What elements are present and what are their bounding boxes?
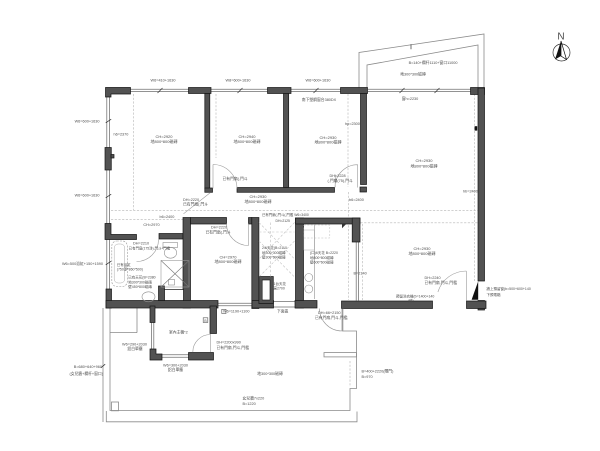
svg-text:下預電箱: 下預電箱 xyxy=(487,292,501,297)
svg-text:(750淨*860*500): (750淨*860*500) xyxy=(117,267,143,272)
svg-text:已有門扇(,門斗: 已有門扇(,門斗 xyxy=(183,201,208,206)
svg-text:地800*800磁磚: 地800*800磁磚 xyxy=(409,250,436,256)
svg-text:(女兒牆+欄杆+窗口): (女兒牆+欄杆+窗口) xyxy=(69,371,103,376)
svg-text:W6=600+1630: W6=600+1630 xyxy=(75,120,100,124)
svg-text:B=140+欄杆1110+窗口11000: B=140+欄杆1110+窗口11000 xyxy=(409,60,458,65)
svg-text:地800*800磁磚: 地800*800磁磚 xyxy=(215,258,242,264)
svg-text:(穩): (穩) xyxy=(408,298,414,303)
svg-text:已有門扇(,門斗: 已有門扇(,門斗 xyxy=(206,229,231,234)
svg-text:DH=2210: DH=2210 xyxy=(133,242,149,246)
svg-text:h6=2370: h6=2370 xyxy=(114,133,129,137)
svg-text:壁600*600磁磚: 壁600*600磁磚 xyxy=(310,260,334,265)
svg-text:W8=600+1630: W8=600+1630 xyxy=(226,79,251,83)
svg-text:W6=410+1630: W6=410+1630 xyxy=(151,79,176,83)
svg-text:B=1220: B=1220 xyxy=(243,402,256,406)
svg-text:地800*800磁磚: 地800*800磁磚 xyxy=(245,198,272,204)
svg-text:2/6天花(B=2110: 2/6天花(B=2110 xyxy=(262,245,287,250)
svg-text:地300*300磁磚: 地300*300磁磚 xyxy=(128,279,152,284)
svg-text:地800*800磁磚: 地800*800磁磚 xyxy=(411,163,438,169)
svg-text:DH=2200x990: DH=2200x990 xyxy=(217,340,241,344)
svg-text:下面區: 下面區 xyxy=(277,308,289,313)
svg-text:鋁白單塵: 鋁白單塵 xyxy=(168,367,183,372)
svg-text:預留洗衣機(b=1400+140: 預留洗衣機(b=1400+140 xyxy=(396,294,434,299)
svg-text:DH=2228: DH=2228 xyxy=(330,174,346,178)
svg-text:DH=66+2150: DH=66+2150 xyxy=(318,311,341,315)
svg-text:室內主機*2: 室內主機*2 xyxy=(169,329,188,334)
svg-text:1台天花: 1台天花 xyxy=(274,281,287,286)
svg-text:已有門扇(175淨),門斗+門檻: 已有門扇(175淨),門斗+門檻 xyxy=(129,246,171,251)
svg-text:B=970: B=970 xyxy=(362,375,373,379)
svg-text:高2700: 高2700 xyxy=(274,286,285,291)
svg-text:b6=2400: b6=2400 xyxy=(349,198,364,202)
svg-text:壁300*600磁磚: 壁300*600磁磚 xyxy=(262,255,286,260)
svg-text:已有門扇(,門斗: 已有門扇(,門斗 xyxy=(223,176,248,181)
svg-text:已有浴缸: 已有浴缸 xyxy=(117,262,131,267)
svg-text:b6=2400: b6=2400 xyxy=(160,215,175,219)
svg-text:W6=1190+1100: W6=1190+1100 xyxy=(223,309,249,313)
svg-text:地800*800磁磚: 地800*800磁磚 xyxy=(310,255,334,260)
svg-text:hp=2300: hp=2300 xyxy=(345,122,360,126)
svg-text:已有門扇(,門斗(,門檻 W6=3400: 已有門扇(,門斗(,門檻 W6=3400 xyxy=(262,212,309,217)
svg-text:DH=2220: DH=2220 xyxy=(211,226,227,230)
svg-text:(,門扇(75),門斗: (,門扇(75),門斗 xyxy=(328,178,354,183)
svg-text:地800*800磁磚: 地800*800磁磚 xyxy=(315,139,342,145)
svg-text:W6=600+1630: W6=600+1630 xyxy=(75,194,100,198)
svg-text:女兒牆7x220: 女兒牆7x220 xyxy=(243,396,265,401)
svg-text:地800*800磁磚: 地800*800磁磚 xyxy=(151,138,178,144)
svg-text:B=2140: B=2140 xyxy=(354,272,367,276)
svg-text:N: N xyxy=(557,32,564,43)
svg-text:W6=290+2030: W6=290+2030 xyxy=(122,342,147,346)
svg-text:已有天花(B=2380: 已有天花(B=2380 xyxy=(128,275,155,280)
svg-text:地300*300磁磚: 地300*300磁磚 xyxy=(262,250,286,255)
svg-text:窗h=2230: 窗h=2230 xyxy=(402,96,419,101)
svg-text:牆上預留窗(b=500+600+140: 牆上預留窗(b=500+600+140 xyxy=(487,286,531,291)
svg-text:已有門扇,門斗,門檻: 已有門扇,門斗,門檻 xyxy=(217,345,250,350)
svg-text:hb=2400: hb=2400 xyxy=(463,190,478,194)
svg-text:壁450*800磁磚: 壁450*800磁磚 xyxy=(128,284,152,289)
svg-text:已有門扇,門斗,門檻: 已有門扇,門斗,門檻 xyxy=(315,315,348,320)
svg-text:DH=2240: DH=2240 xyxy=(425,276,441,280)
svg-text:地800*800磁磚: 地800*800磁磚 xyxy=(234,138,261,144)
svg-text:CH=2930: CH=2930 xyxy=(415,158,433,163)
svg-text:南下塑鋼窗台380DX: 南下塑鋼窗台380DX xyxy=(302,97,337,102)
svg-text:W6=300+2030: W6=300+2030 xyxy=(163,363,188,367)
svg-text:B=400+2220(閘門): B=400+2220(閘門) xyxy=(362,369,395,374)
svg-text:已有門扇,門斗,門檻: 已有門扇,門斗,門檻 xyxy=(425,280,458,285)
svg-text:DH=2220: DH=2220 xyxy=(183,198,199,202)
svg-text:W6=500浴缸+150+1590: W6=500浴缸+150+1590 xyxy=(62,261,103,266)
svg-text:地300*300磁磚: 地300*300磁磚 xyxy=(257,371,283,376)
svg-text:DH=2125: DH=2125 xyxy=(276,219,291,223)
svg-text:鋁白單塵: 鋁白單塵 xyxy=(127,346,142,351)
svg-text:B=680+640+960: B=680+640+960 xyxy=(74,365,102,369)
svg-text:(口)6天花 B=2220: (口)6天花 B=2220 xyxy=(310,250,338,255)
svg-text:地300*300磁磚: 地300*300磁磚 xyxy=(400,72,426,77)
svg-text:W6=600+1630: W6=600+1630 xyxy=(306,79,331,83)
svg-text:CH=2970: CH=2970 xyxy=(143,223,159,227)
